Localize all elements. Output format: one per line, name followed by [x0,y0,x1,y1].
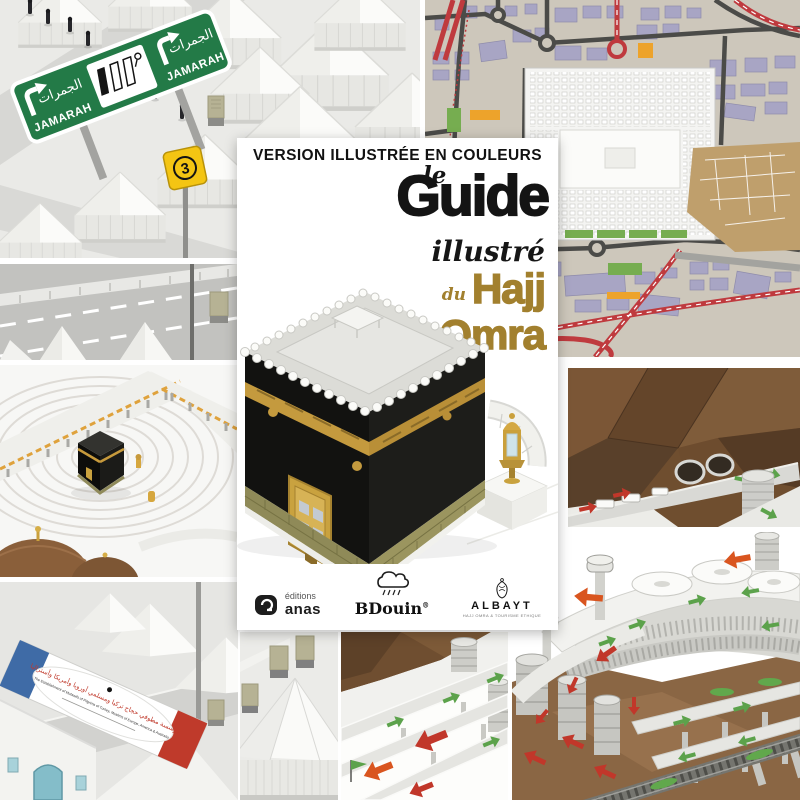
panel-mina-entrance-banner: مؤسسة مطوفي حجاج تركيا ومسلمي أوروبا وأم… [0,582,238,800]
panel-haram-courtyard [0,365,237,577]
anas-label: anas [285,602,321,618]
albayt-label: ALBAYT [471,601,533,613]
albayt-tagline: HAJJ OMRA & TOURISME ETHIQUE [463,614,541,618]
cylinder-tower [755,532,779,570]
bdouin-logo: BDouin® [355,569,429,618]
tunnel-entrance-2 [707,455,733,475]
panel-mina-road [0,264,237,360]
kaaba-cube [241,289,489,564]
ac-unit [208,96,224,126]
registered-mark: ® [422,601,429,610]
book-cover: VERSION ILLUSTRÉE EN COULEURS le Guide i… [237,138,558,630]
editions-anas-icon [254,592,280,618]
tunnel-entrance [676,461,704,483]
editions-anas-logo: éditions anas [254,592,321,618]
panel-jamarat-ramps [341,632,508,800]
light-pole [190,264,194,360]
map-orange-landmark [638,43,653,58]
kaaba-illustration [237,234,558,564]
title-guide: Guide [396,168,548,225]
publisher-logos: éditions anas BDouin® ALBAYT HAJJ OMRA [237,569,558,618]
panel-mina-tent-closeup [240,632,338,800]
product-image-collage: الجمرات JAMARAH الجمرات JAMARAH [0,0,800,800]
flag-pole [196,582,201,732]
bdouin-label: BDouin® [355,599,429,618]
bdouin-cloud-icon [372,569,412,599]
arched-door [34,765,62,800]
albayt-lamp-icon [492,577,512,601]
panel-mountain-tunnels [568,368,800,527]
cover-banner-text: VERSION ILLUSTRÉE EN COULEURS [237,147,558,165]
albayt-logo: ALBAYT HAJJ OMRA & TOURISME ETHIQUE [463,577,541,618]
